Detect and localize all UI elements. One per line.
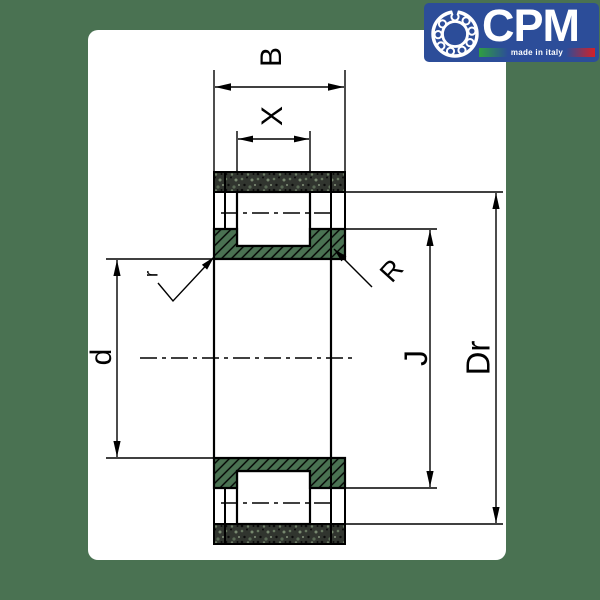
dimension-label-J: J <box>400 350 432 366</box>
dimension-label-Dr: Dr <box>462 341 495 376</box>
made-in-italy-flag: made in italy <box>479 47 595 57</box>
dimension-label-d: d <box>87 349 117 366</box>
brand-name: CPM <box>482 1 579 51</box>
fillet-leader-right <box>334 249 372 287</box>
bearing-cross-section-drawing <box>0 0 600 600</box>
dimension-X <box>237 131 310 172</box>
dimension-d <box>106 259 214 458</box>
cpm-logo-panel: CPM made in italy <box>424 3 599 62</box>
tagline: made in italy <box>511 48 563 57</box>
bearing-icon <box>429 7 481 60</box>
flag-green-bar <box>479 48 508 57</box>
dimension-label-r-left: r <box>143 271 162 277</box>
flag-red-bar <box>566 48 595 57</box>
fillet-leader-left <box>158 257 214 301</box>
dimension-label-X: X <box>258 106 288 126</box>
dimension-label-B: B <box>257 47 287 67</box>
page: B X d J Dr r R CPM made in italy <box>0 0 600 600</box>
